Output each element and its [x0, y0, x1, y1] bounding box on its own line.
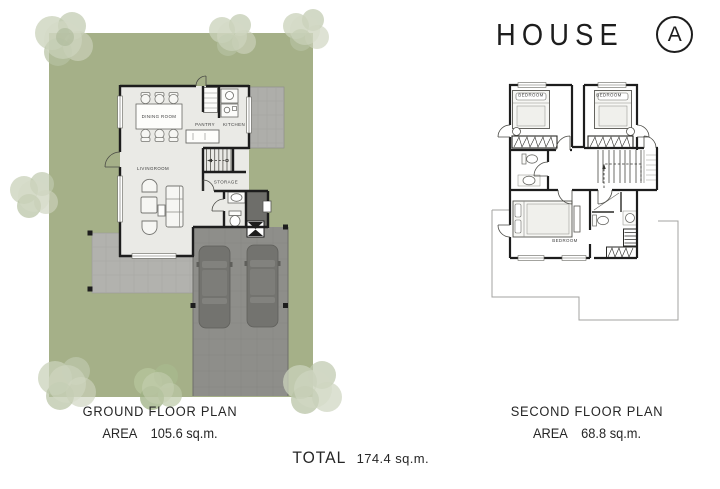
ground-floor-area-value: 105.6 sq.m. [151, 426, 218, 441]
tree [38, 357, 96, 410]
house-title-text: HOUSE [496, 17, 624, 53]
label-livingroom: LIVINGROOM [137, 166, 169, 171]
label-dining-room: DINING ROOM [142, 114, 177, 119]
total-value: 174.4 sq.m. [357, 451, 429, 466]
label-bedroom-master: BEDROOM [552, 238, 578, 243]
second-floor-area-value: 68.8 sq.m. [581, 426, 641, 441]
ground-floor-area-label: AREA [102, 426, 137, 441]
wardrobe-right [588, 136, 633, 148]
armchair-mid [141, 197, 157, 213]
toilet [598, 216, 609, 224]
shelves [624, 229, 638, 246]
label-bedroom-left: BEDROOM [518, 93, 544, 98]
sink [231, 194, 242, 202]
wardrobe-left [512, 136, 557, 148]
car-2 [245, 245, 281, 327]
house-variant-badge: A [656, 16, 693, 53]
total-label: TOTAL [292, 449, 346, 468]
house-title: HOUSE A [496, 16, 693, 53]
armchair-bottom [142, 221, 157, 235]
pantry-shelves [204, 88, 218, 113]
kitchen-sink [226, 92, 234, 100]
walk-line [604, 164, 641, 188]
ground-floor-caption-title: GROUND FLOOR PLAN [60, 404, 260, 419]
second-floor-area-label: AREA [533, 426, 568, 441]
toilet [230, 216, 240, 227]
sink [523, 176, 535, 185]
kitchen-counter [221, 89, 238, 117]
tree [35, 12, 93, 66]
label-storage: STORAGE [214, 180, 238, 185]
stool [513, 128, 521, 136]
sofa [166, 186, 183, 227]
label-kitchen: KITCHEN [223, 122, 245, 127]
label-bedroom-right: BEDROOM [596, 93, 622, 98]
bench [574, 206, 580, 232]
coffee-table [158, 205, 165, 216]
island-counter [186, 130, 219, 143]
total-area: TOTAL 174.4 sq.m. [240, 449, 480, 468]
entry-step [263, 201, 271, 212]
deck [249, 87, 284, 148]
label-pantry: PANTRY [195, 122, 215, 127]
stairs-second [598, 150, 657, 188]
stove-burner [224, 107, 230, 113]
tree [10, 172, 58, 218]
second-floor-plan: BEDROOM BEDROOM BEDROOM [492, 83, 678, 320]
car-1 [197, 246, 233, 328]
bed-master [513, 201, 580, 237]
bathroom-upper [518, 154, 540, 186]
floor-plan-sheet: DINING ROOM PANTRY KITCHEN LIVINGROOM ST… [0, 0, 720, 489]
bathroom-right [592, 192, 637, 258]
sink [626, 214, 635, 223]
stool [627, 128, 635, 136]
tree [283, 361, 342, 414]
armchair-top [142, 179, 157, 192]
doormat [247, 221, 264, 237]
ground-floor-caption: GROUND FLOOR PLAN AREA 105.6 sq.m. [55, 404, 265, 441]
second-floor-caption: SECOND FLOOR PLAN AREA 68.8 sq.m. [482, 404, 692, 441]
second-floor-caption-title: SECOND FLOOR PLAN [487, 404, 687, 419]
toilet [527, 155, 538, 163]
ground-floor-plan: DINING ROOM PANTRY KITCHEN LIVINGROOM ST… [10, 9, 342, 414]
